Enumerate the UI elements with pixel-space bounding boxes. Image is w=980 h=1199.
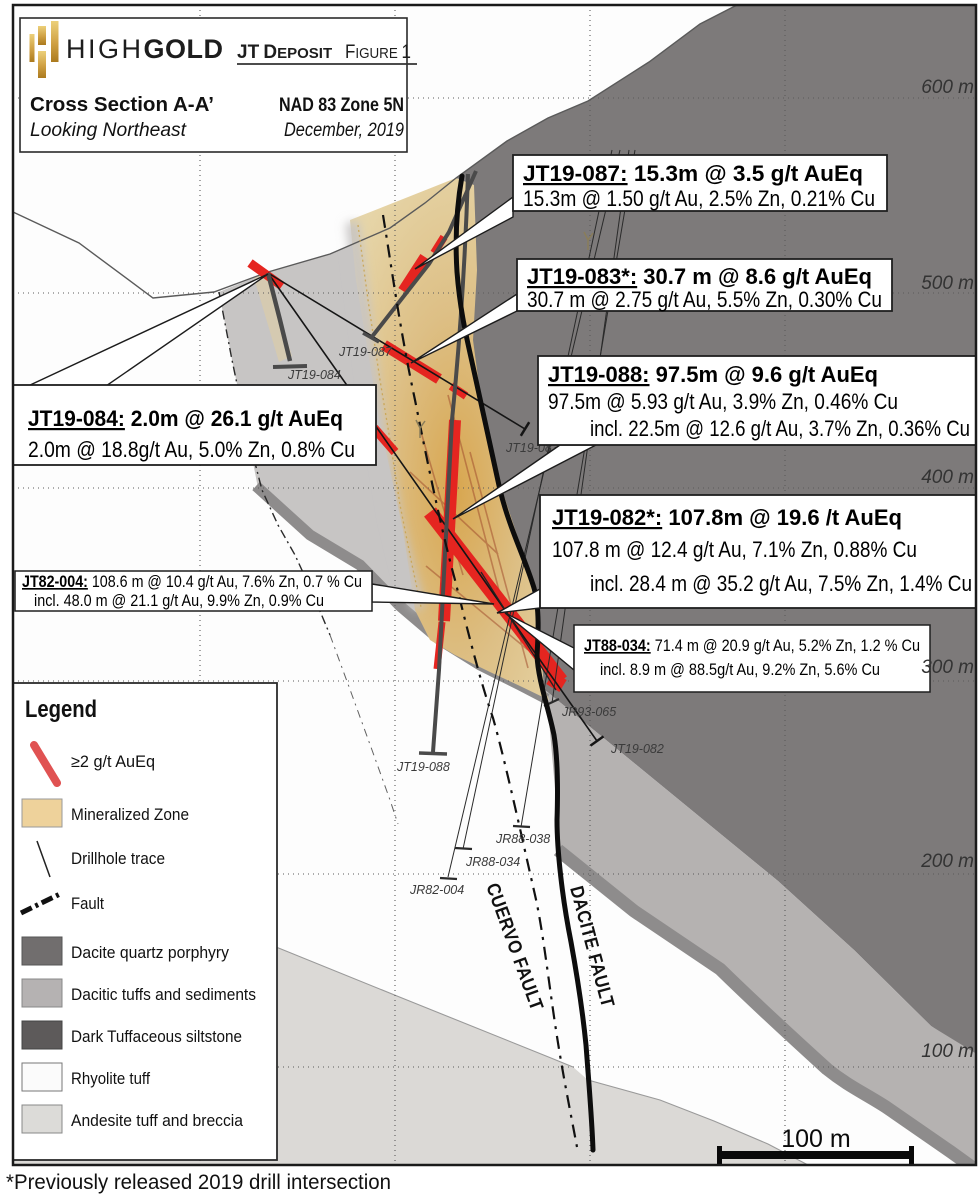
svg-text:JR82-004: JR82-004 [409,883,464,897]
svg-text:Fault: Fault [71,895,104,913]
svg-text:JT19-082: JT19-082 [610,742,664,756]
svg-text:Cross Section A-A’: Cross Section A-A’ [30,94,214,116]
svg-text:Legend: Legend [25,696,97,723]
svg-text:HIGHGOLD: HIGHGOLD [66,34,224,64]
svg-text:JR88-034: JR88-034 [465,855,520,869]
svg-text:100 m: 100 m [781,1125,850,1153]
svg-text:incl. 48.0 m @ 21.1 g/t Au, 9.: incl. 48.0 m @ 21.1 g/t Au, 9.9% Zn, 0.9… [34,592,324,610]
svg-text:Drillhole trace: Drillhole trace [71,850,165,868]
svg-text:200 m: 200 m [920,851,974,872]
svg-text:300 m: 300 m [921,657,974,678]
svg-text:Looking Northeast: Looking Northeast [30,119,188,141]
svg-text:Rhyolite tuff: Rhyolite tuff [71,1070,150,1088]
svg-text:107.8 m @ 12.4 g/t Au, 7.1% Zn: 107.8 m @ 12.4 g/t Au, 7.1% Zn, 0.88% Cu [552,537,917,562]
svg-text:100 m: 100 m [921,1041,974,1062]
svg-text:500 m: 500 m [921,273,974,294]
svg-text:*Previously released 2019 dril: *Previously released 2019 drill intersec… [6,1171,391,1194]
svg-text:JT19-087: 15.3m @ 3.5 g/t AuEq: JT19-087: 15.3m @ 3.5 g/t AuEq [523,161,863,186]
svg-text:≥2 g/t AuEq: ≥2 g/t AuEq [71,753,155,771]
svg-text:NAD 83 Zone 5N: NAD 83 Zone 5N [279,95,404,116]
svg-text:JT19-084: 2.0m @ 26.1 g/t AuEq: JT19-084: 2.0m @ 26.1 g/t AuEq [28,406,343,431]
svg-text:JT DEPOSIT: JT DEPOSIT [237,42,332,63]
svg-text:JT19-082*: 107.8m @ 19.6 /t Au: JT19-082*: 107.8m @ 19.6 /t AuEq [552,505,902,530]
svg-text:Dacitic tuffs and sediments: Dacitic tuffs and sediments [71,986,256,1004]
svg-text:600 m: 600 m [921,77,974,98]
svg-text:JR88-038: JR88-038 [495,832,550,846]
svg-text:Andesite tuff and breccia: Andesite tuff and breccia [71,1112,244,1130]
svg-text:JT19-083*: 30.7 m @ 8.6 g/t Au: JT19-083*: 30.7 m @ 8.6 g/t AuEq [527,264,872,289]
svg-text:400 m: 400 m [921,467,974,488]
svg-text:15.3m @ 1.50 g/t Au, 2.5% Zn,: 15.3m @ 1.50 g/t Au, 2.5% Zn, 0.21% Cu [523,186,875,211]
svg-text:JT19-088: 97.5m @ 9.6 g/t AuEq: JT19-088: 97.5m @ 9.6 g/t AuEq [548,362,878,387]
svg-text:30.7 m @ 2.75 g/t Au, 5.5% Zn,: 30.7 m @ 2.75 g/t Au, 5.5% Zn, 0.30% Cu [527,287,882,312]
svg-text:JT88-034: 71.4 m @ 20.9 g/t Au: JT88-034: 71.4 m @ 20.9 g/t Au, 5.2% Zn,… [584,637,920,655]
svg-text:Mineralized Zone: Mineralized Zone [71,806,189,824]
svg-text:incl. 28.4 m @ 35.2 g/t Au, 7.: incl. 28.4 m @ 35.2 g/t Au, 7.5% Zn, 1.4… [590,571,972,596]
svg-text:incl. 22.5m @ 12.6 g/t Au, 3.: incl. 22.5m @ 12.6 g/t Au, 3.7% Zn, 0.36… [590,416,970,441]
svg-text:incl. 8.9 m @ 88.5g/t Au, 9.2%: incl. 8.9 m @ 88.5g/t Au, 9.2% Zn, 5.6% … [600,661,880,679]
svg-text:FIGURE 1: FIGURE 1 [345,42,411,63]
svg-text:2.0m @ 18.8g/t Au, 5.0% Zn, 0.: 2.0m @ 18.8g/t Au, 5.0% Zn, 0.8% Cu [28,437,355,462]
svg-text:JT19-084: JT19-084 [287,368,341,382]
svg-text:97.5m @ 5.93 g/t Au, 3.9% Zn,: 97.5m @ 5.93 g/t Au, 3.9% Zn, 0.46% Cu [548,389,898,414]
svg-text:December, 2019: December, 2019 [284,120,404,141]
svg-text:Dacite quartz porphyry: Dacite quartz porphyry [71,944,230,962]
svg-text:Dark Tuffaceous siltstone: Dark Tuffaceous siltstone [71,1028,242,1046]
svg-text:JT19-088: JT19-088 [396,760,450,774]
svg-text:JR93-065: JR93-065 [561,705,616,719]
svg-text:JT19-087: JT19-087 [338,345,393,359]
svg-text:JT82-004: 108.6 m @ 10.4 g/t A: JT82-004: 108.6 m @ 10.4 g/t Au, 7.6% Zn… [22,573,362,591]
